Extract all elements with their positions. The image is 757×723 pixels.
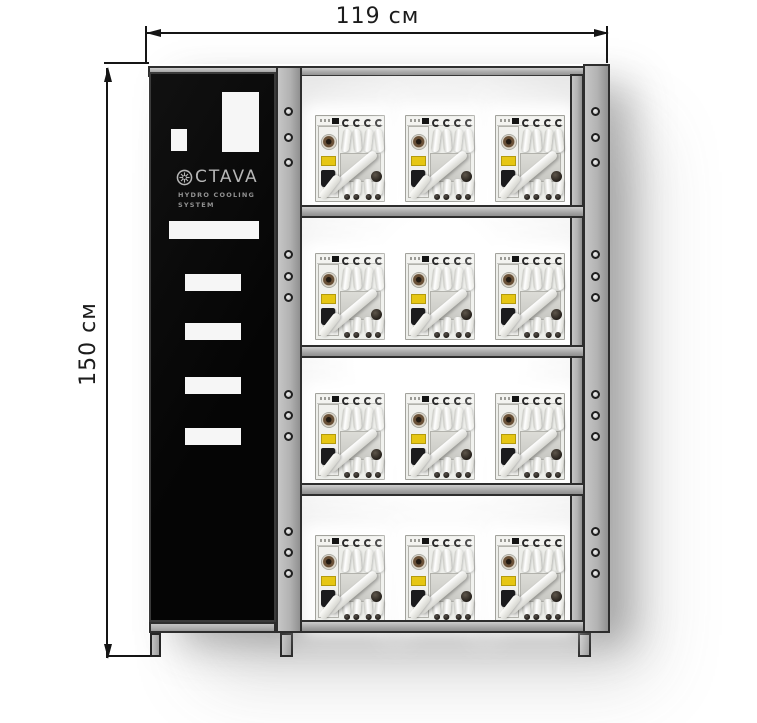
hose-top	[453, 267, 463, 291]
power-socket-icon	[332, 256, 339, 262]
hose-bottom	[532, 317, 541, 334]
hose-bottom	[543, 179, 552, 196]
hose-top	[341, 129, 352, 153]
screw-hole	[591, 527, 600, 536]
hose-coupling-icon	[454, 257, 462, 265]
hose-top	[554, 129, 565, 153]
power-socket-icon	[512, 538, 519, 544]
hose-top	[442, 129, 452, 153]
hose-top	[532, 407, 542, 431]
frame-bottom-bar	[276, 620, 610, 633]
vent-slot	[185, 428, 241, 445]
hose-bottom	[543, 317, 552, 334]
hose-top	[521, 549, 532, 573]
hose-coupling-icon	[432, 539, 440, 547]
vent-slot	[185, 274, 241, 291]
hose-coupling-icon	[533, 257, 541, 265]
screw-hole	[284, 133, 293, 142]
hose-top	[431, 549, 442, 573]
unit-top-strip	[497, 117, 563, 126]
cooling-unit	[315, 253, 385, 340]
vent-slot	[185, 377, 241, 394]
unit-top-strip	[407, 537, 473, 546]
hose-top	[374, 407, 385, 431]
screw-hole	[284, 250, 293, 259]
hose-coupling-icon	[555, 119, 563, 127]
hose-coupling-icon	[375, 257, 383, 265]
hose-bottom	[442, 599, 451, 616]
screw-hole	[591, 432, 600, 441]
hose-top	[374, 267, 385, 291]
unit-top-strip	[497, 395, 563, 404]
hose-top	[464, 267, 475, 291]
valve-knob-icon	[371, 449, 382, 460]
hose-bottom	[363, 457, 372, 474]
round-port-icon	[322, 555, 336, 569]
warning-label	[501, 156, 516, 166]
hose-bottom	[543, 599, 552, 616]
hose-coupling-icon	[342, 539, 350, 547]
unit-top-strip	[407, 117, 473, 126]
hose-top	[543, 407, 553, 431]
hose-top	[352, 549, 362, 573]
unit-top-strip	[407, 255, 473, 264]
shelf-row	[315, 393, 565, 480]
hose-top	[532, 549, 542, 573]
hose-top	[453, 549, 463, 573]
hose-top	[363, 407, 373, 431]
hose-top	[453, 129, 463, 153]
hose-coupling-icon	[353, 257, 361, 265]
unit-top-strip	[317, 395, 383, 404]
warning-label	[501, 576, 516, 586]
round-port-icon	[412, 273, 426, 287]
hose-bottom	[442, 317, 451, 334]
cabinet-leg	[280, 633, 293, 657]
hose-top	[363, 549, 373, 573]
screw-hole	[591, 272, 600, 281]
hose-coupling-icon	[522, 539, 530, 547]
hose-bottom	[363, 599, 372, 616]
hose-bottom	[442, 457, 451, 474]
power-socket-icon	[422, 396, 429, 402]
warning-label	[411, 156, 426, 166]
shelf-row	[315, 253, 565, 340]
height-dimension-arrow	[106, 68, 108, 658]
valve-knob-icon	[371, 309, 382, 320]
hose-top	[431, 407, 442, 431]
extension-tick	[606, 26, 608, 63]
hose-coupling-icon	[522, 119, 530, 127]
hose-coupling-icon	[364, 539, 372, 547]
hose-top	[374, 549, 385, 573]
unit-top-strip	[317, 537, 383, 546]
tagline-line1: HYDRO COOLING	[178, 191, 255, 199]
screw-hole	[591, 569, 600, 578]
screw-hole	[591, 548, 600, 557]
octava-logo: CTAVA	[176, 167, 259, 187]
unit-top-strip	[407, 395, 473, 404]
width-dimension-label: 119 см	[147, 4, 608, 29]
hose-coupling-icon	[544, 257, 552, 265]
hose-top	[554, 407, 565, 431]
hose-top	[543, 267, 553, 291]
hose-coupling-icon	[342, 119, 350, 127]
valve-knob-icon	[461, 449, 472, 460]
valve-knob-icon	[551, 449, 562, 460]
hose-coupling-icon	[443, 539, 451, 547]
shelf-row	[315, 535, 565, 622]
hose-coupling-icon	[342, 397, 350, 405]
extension-tick	[104, 62, 149, 64]
round-port-icon	[502, 273, 516, 287]
hose-bottom	[532, 599, 541, 616]
hose-coupling-icon	[432, 397, 440, 405]
hose-coupling-icon	[342, 257, 350, 265]
hose-bottom	[453, 599, 462, 616]
screw-hole	[284, 432, 293, 441]
screw-hole	[284, 107, 293, 116]
hose-bottom	[532, 457, 541, 474]
hose-top	[543, 129, 553, 153]
hose-top	[431, 129, 442, 153]
hose-coupling-icon	[544, 397, 552, 405]
valve-knob-icon	[371, 171, 382, 182]
hose-top	[363, 267, 373, 291]
round-port-icon	[502, 135, 516, 149]
hose-coupling-icon	[522, 397, 530, 405]
hose-coupling-icon	[364, 257, 372, 265]
product-diagram: 119 см 150 см	[0, 0, 757, 723]
hose-bottom	[363, 317, 372, 334]
hose-bottom	[352, 179, 361, 196]
hose-top	[431, 267, 442, 291]
warning-label	[501, 294, 516, 304]
unit-top-strip	[317, 255, 383, 264]
cooling-unit	[315, 535, 385, 622]
unit-top-strip	[317, 117, 383, 126]
hose-top	[554, 549, 565, 573]
vent-slot	[169, 221, 259, 239]
hose-coupling-icon	[443, 397, 451, 405]
hose-coupling-icon	[533, 397, 541, 405]
screw-hole	[591, 293, 600, 302]
vent-slot	[171, 129, 187, 151]
round-port-icon	[412, 555, 426, 569]
screw-hole	[284, 293, 293, 302]
screw-hole	[591, 158, 600, 167]
round-port-icon	[502, 555, 516, 569]
hose-bottom	[442, 179, 451, 196]
height-dimension-label: 150 см	[76, 279, 102, 409]
hose-coupling-icon	[353, 539, 361, 547]
hose-bottom	[352, 317, 361, 334]
hose-coupling-icon	[454, 539, 462, 547]
hose-top	[521, 407, 532, 431]
tagline-line2: SYSTEM	[178, 201, 215, 209]
valve-knob-icon	[461, 171, 472, 182]
screw-hole	[284, 527, 293, 536]
unit-top-strip	[497, 255, 563, 264]
hose-bottom	[453, 457, 462, 474]
cabinet-leg	[578, 633, 591, 657]
hose-top	[532, 267, 542, 291]
hose-coupling-icon	[555, 397, 563, 405]
hose-top	[442, 407, 452, 431]
screw-hole	[591, 250, 600, 259]
warning-label	[321, 294, 336, 304]
hose-top	[341, 267, 352, 291]
round-port-icon	[412, 135, 426, 149]
hose-coupling-icon	[432, 257, 440, 265]
hose-bottom	[453, 179, 462, 196]
hose-top	[543, 549, 553, 573]
hose-bottom	[363, 179, 372, 196]
round-port-icon	[412, 413, 426, 427]
hose-bottom	[352, 457, 361, 474]
hose-coupling-icon	[353, 397, 361, 405]
vent-slot	[222, 92, 259, 152]
warning-label	[411, 434, 426, 444]
hose-top	[442, 267, 452, 291]
hose-coupling-icon	[454, 397, 462, 405]
hose-top	[464, 129, 475, 153]
hose-top	[341, 549, 352, 573]
shelf-bar	[276, 483, 610, 496]
vent-slot	[185, 323, 241, 340]
brand-text: CTAVA	[195, 167, 259, 187]
warning-label	[321, 434, 336, 444]
screw-hole	[284, 390, 293, 399]
hose-top	[453, 407, 463, 431]
power-socket-icon	[422, 538, 429, 544]
hose-coupling-icon	[375, 397, 383, 405]
hose-top	[521, 267, 532, 291]
warning-label	[411, 294, 426, 304]
power-socket-icon	[422, 256, 429, 262]
hose-bottom	[543, 457, 552, 474]
hose-coupling-icon	[555, 539, 563, 547]
screw-hole	[284, 158, 293, 167]
shelf-row	[315, 115, 565, 202]
hose-coupling-icon	[454, 119, 462, 127]
hose-coupling-icon	[443, 257, 451, 265]
power-socket-icon	[332, 396, 339, 402]
screw-hole	[591, 107, 600, 116]
hose-coupling-icon	[375, 119, 383, 127]
screw-hole	[591, 411, 600, 420]
hose-top	[442, 549, 452, 573]
warning-label	[411, 576, 426, 586]
screw-hole	[284, 569, 293, 578]
cabinet-leg	[150, 633, 161, 657]
hose-coupling-icon	[364, 119, 372, 127]
valve-knob-icon	[551, 591, 562, 602]
cooling-unit	[495, 115, 565, 202]
valve-knob-icon	[551, 171, 562, 182]
screw-hole	[284, 548, 293, 557]
panel-base-bar	[149, 622, 276, 633]
hose-top	[352, 407, 362, 431]
hose-top	[374, 129, 385, 153]
power-socket-icon	[332, 538, 339, 544]
cooling-unit	[405, 393, 475, 480]
power-socket-icon	[422, 118, 429, 124]
power-socket-icon	[332, 118, 339, 124]
power-socket-icon	[512, 396, 519, 402]
hose-coupling-icon	[465, 119, 473, 127]
round-port-icon	[322, 413, 336, 427]
hose-top	[554, 267, 565, 291]
hose-top	[341, 407, 352, 431]
valve-knob-icon	[371, 591, 382, 602]
hose-top	[352, 129, 362, 153]
hose-coupling-icon	[533, 539, 541, 547]
round-port-icon	[322, 135, 336, 149]
power-socket-icon	[512, 118, 519, 124]
screw-hole	[591, 133, 600, 142]
cabinet: CTAVA HYDRO COOLING SYSTEM	[148, 64, 610, 658]
hose-coupling-icon	[443, 119, 451, 127]
cooling-unit	[315, 393, 385, 480]
screw-hole	[284, 411, 293, 420]
warning-label	[321, 156, 336, 166]
hose-coupling-icon	[533, 119, 541, 127]
cooling-unit	[405, 253, 475, 340]
cooling-unit	[315, 115, 385, 202]
round-port-icon	[322, 273, 336, 287]
valve-knob-icon	[461, 309, 472, 320]
hose-top	[521, 129, 532, 153]
hose-coupling-icon	[353, 119, 361, 127]
hose-top	[464, 549, 475, 573]
unit-top-strip	[497, 537, 563, 546]
cooling-unit	[495, 393, 565, 480]
cooling-unit	[405, 535, 475, 622]
screw-hole	[284, 272, 293, 281]
shelf-bar	[276, 345, 610, 358]
valve-knob-icon	[461, 591, 472, 602]
round-port-icon	[502, 413, 516, 427]
valve-knob-icon	[551, 309, 562, 320]
cooling-unit	[495, 535, 565, 622]
power-socket-icon	[512, 256, 519, 262]
hose-top	[352, 267, 362, 291]
width-dimension-arrow	[147, 32, 608, 34]
hose-coupling-icon	[364, 397, 372, 405]
cooling-unit	[405, 115, 475, 202]
hose-coupling-icon	[432, 119, 440, 127]
hose-top	[532, 129, 542, 153]
hose-coupling-icon	[465, 257, 473, 265]
warning-label	[501, 434, 516, 444]
cooling-unit	[495, 253, 565, 340]
screw-hole	[591, 390, 600, 399]
octava-rosette-icon	[176, 169, 193, 186]
hose-bottom	[453, 317, 462, 334]
hose-top	[363, 129, 373, 153]
warning-label	[321, 576, 336, 586]
cabinet-frame: CTAVA HYDRO COOLING SYSTEM	[148, 64, 610, 633]
hose-coupling-icon	[465, 397, 473, 405]
shelf-bar	[276, 205, 610, 218]
brand-panel: CTAVA HYDRO COOLING SYSTEM	[149, 72, 276, 622]
hose-bottom	[532, 179, 541, 196]
hose-coupling-icon	[465, 539, 473, 547]
hose-coupling-icon	[522, 257, 530, 265]
hose-coupling-icon	[544, 119, 552, 127]
hose-coupling-icon	[555, 257, 563, 265]
hose-bottom	[352, 599, 361, 616]
extension-tick	[145, 26, 147, 63]
hose-top	[464, 407, 475, 431]
hose-coupling-icon	[544, 539, 552, 547]
hose-coupling-icon	[375, 539, 383, 547]
